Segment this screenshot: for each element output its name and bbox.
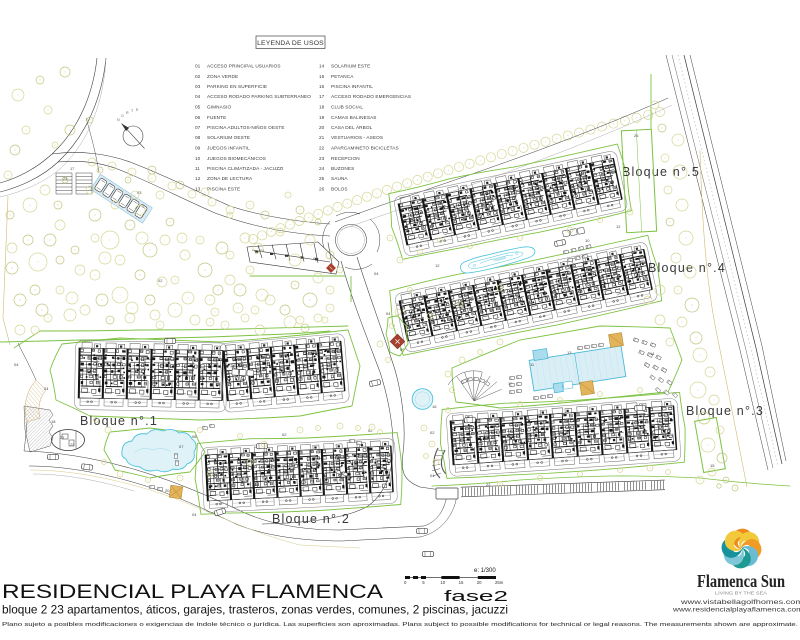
svg-text:LIVING BY THE SEA: LIVING BY THE SEA [715, 591, 768, 597]
svg-text:17: 17 [70, 167, 74, 171]
svg-text:GIMNASIO: GIMNASIO [207, 105, 231, 110]
svg-text:23: 23 [319, 156, 325, 161]
svg-text:03: 03 [195, 84, 201, 89]
svg-text:Plano sujeto a posibles modifi: Plano sujeto a posibles modificaciones o… [2, 622, 799, 628]
svg-text:24: 24 [44, 386, 49, 391]
svg-text:12: 12 [195, 176, 201, 181]
svg-text:RESIDENCIAL PLAYA FLAMENCA: RESIDENCIAL PLAYA FLAMENCA [2, 582, 383, 603]
svg-text:10: 10 [585, 238, 590, 243]
svg-text:Flamenca Sun: Flamenca Sun [697, 571, 785, 591]
svg-text:04: 04 [374, 271, 379, 276]
svg-text:ZONA VERDE: ZONA VERDE [207, 74, 238, 79]
svg-text:17: 17 [319, 94, 325, 99]
svg-text:ACCESO PRINCIPAL USUARIOS: ACCESO PRINCIPAL USUARIOS [207, 64, 281, 69]
svg-text:PISCINA ESTE: PISCINA ESTE [207, 187, 240, 192]
svg-text:e: 1/300: e: 1/300 [474, 568, 496, 574]
svg-text:02: 02 [158, 278, 163, 283]
svg-text:21: 21 [70, 443, 74, 447]
svg-text:08: 08 [195, 135, 201, 140]
svg-text:O: O [121, 114, 124, 118]
svg-text:18: 18 [319, 105, 325, 110]
svg-text:04: 04 [430, 473, 435, 478]
svg-text:20: 20 [319, 125, 325, 130]
svg-text:JUEGOS INFANTIL: JUEGOS INFANTIL [207, 146, 250, 151]
svg-text:09: 09 [195, 146, 201, 151]
svg-text:04: 04 [195, 94, 201, 99]
svg-text:04: 04 [14, 362, 19, 367]
svg-text:Bloque n°.4: Bloque n°.4 [648, 261, 726, 275]
svg-text:BOLOS: BOLOS [331, 187, 348, 192]
svg-text:20: 20 [477, 580, 482, 585]
svg-text:Bloque n°.3: Bloque n°.3 [686, 404, 764, 418]
svg-text:PISCINA ADULTOS-NIÑOS OESTE: PISCINA ADULTOS-NIÑOS OESTE [207, 124, 285, 130]
svg-text:18: 18 [51, 419, 56, 424]
svg-text:07: 07 [179, 444, 184, 449]
svg-text:www.residencialplayaflamenca.c: www.residencialplayaflamenca.com [672, 607, 800, 614]
svg-text:07: 07 [195, 125, 201, 130]
svg-text:CAMAS BALINESAS: CAMAS BALINESAS [331, 115, 377, 120]
svg-text:N: N [117, 118, 120, 122]
svg-text:R: R [126, 111, 129, 115]
svg-text:APARCAMINETO BICICLETAS: APARCAMINETO BICICLETAS [331, 146, 399, 151]
svg-text:PISCINA CLIMATIZADA - JACUZZI: PISCINA CLIMATIZADA - JACUZZI [207, 166, 284, 171]
svg-text:02: 02 [430, 430, 435, 435]
svg-text:25m: 25m [495, 580, 504, 585]
svg-text:ACCESO RODADO EMERGENCIAS: ACCESO RODADO EMERGENCIAS [331, 94, 411, 99]
svg-text:www.vistabellagolfhomes.com: www.vistabellagolfhomes.com [680, 599, 800, 606]
svg-text:Bloque n°.2: Bloque n°.2 [272, 512, 350, 526]
svg-text:CASA DEL ÁRBOL: CASA DEL ÁRBOL [331, 124, 373, 130]
svg-text:14: 14 [650, 351, 655, 356]
svg-text:24: 24 [319, 166, 325, 171]
svg-text:16: 16 [319, 84, 325, 89]
svg-text:PETANCA: PETANCA [331, 74, 354, 79]
svg-text:02: 02 [282, 432, 287, 437]
svg-text:25: 25 [319, 176, 325, 181]
svg-text:08: 08 [192, 434, 197, 439]
svg-text:23: 23 [60, 436, 64, 440]
svg-text:15: 15 [710, 463, 715, 468]
svg-text:10: 10 [396, 302, 401, 307]
svg-text:15: 15 [319, 74, 325, 79]
svg-text:04: 04 [386, 311, 391, 316]
svg-text:05: 05 [195, 105, 201, 110]
svg-text:02: 02 [195, 74, 201, 79]
svg-text:Bloque n°.5: Bloque n°.5 [622, 165, 700, 179]
svg-text:22: 22 [319, 146, 325, 151]
svg-text:bloque 2 23 apartamentos, át: bloque 2 23 apartamentos, áticos, garaje… [2, 603, 508, 617]
svg-text:01: 01 [195, 64, 201, 69]
svg-text:SAUNA: SAUNA [331, 176, 348, 181]
svg-text:ACCESO RODADO PARKING SUBTERRA: ACCESO RODADO PARKING SUBTERRANEO [207, 94, 311, 99]
svg-text:13: 13 [567, 350, 572, 355]
svg-text:Bloque n°.1: Bloque n°.1 [80, 414, 158, 428]
svg-text:LEYENDA DE USOS: LEYENDA DE USOS [257, 40, 324, 47]
svg-text:14: 14 [319, 64, 325, 69]
svg-text:02: 02 [368, 428, 373, 433]
svg-text:JUEGOS BIOMECÁNICOS: JUEGOS BIOMECÁNICOS [207, 155, 266, 161]
svg-text:15: 15 [459, 580, 464, 585]
svg-text:26: 26 [634, 133, 639, 138]
svg-text:FUENTE: FUENTE [207, 115, 226, 120]
svg-text:ZONA DE LECTURA: ZONA DE LECTURA [207, 176, 253, 181]
svg-text:SOLARIUM ESTE: SOLARIUM ESTE [331, 64, 370, 69]
svg-text:04: 04 [192, 512, 197, 517]
svg-text:11: 11 [195, 166, 200, 171]
svg-text:CLUB SOCIAL: CLUB SOCIAL [331, 105, 363, 110]
svg-text:12: 12 [435, 263, 440, 268]
svg-text:21: 21 [319, 135, 325, 140]
svg-text:RECEPCION: RECEPCION [331, 156, 360, 161]
svg-text:SOLARIUM OESTE: SOLARIUM OESTE [207, 135, 250, 140]
svg-text:06: 06 [195, 115, 201, 120]
svg-text:26: 26 [319, 187, 325, 192]
svg-text:10: 10 [440, 580, 445, 585]
svg-text:05: 05 [313, 256, 318, 261]
svg-text:PARKING EN SUPERFICIE: PARKING EN SUPERFICIE [207, 84, 267, 89]
svg-text:16: 16 [432, 404, 437, 409]
svg-text:19: 19 [319, 115, 325, 120]
svg-text:PISCINA INFANTIL: PISCINA INFANTIL [331, 84, 373, 89]
svg-text:VESTUARIOS - ASEOS: VESTUARIOS - ASEOS [331, 135, 383, 140]
svg-text:BUZONES: BUZONES [331, 166, 354, 171]
svg-text:20: 20 [165, 488, 170, 493]
svg-text:10: 10 [195, 156, 201, 161]
svg-text:12: 12 [616, 224, 621, 229]
